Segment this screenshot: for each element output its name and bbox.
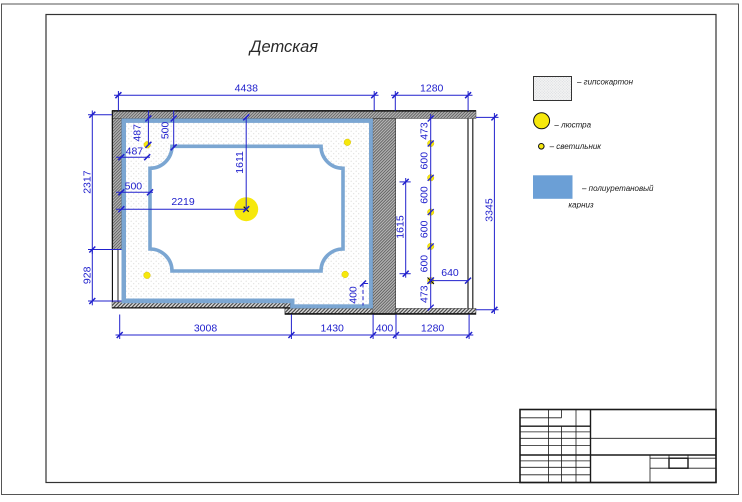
svg-text:3008: 3008 xyxy=(194,323,218,335)
svg-text:1280: 1280 xyxy=(421,323,445,335)
svg-text:473: 473 xyxy=(419,285,431,303)
svg-text:1430: 1430 xyxy=(321,323,345,335)
svg-text:1615: 1615 xyxy=(395,215,407,239)
svg-text:500: 500 xyxy=(125,181,143,193)
svg-text:600: 600 xyxy=(419,255,431,273)
svg-text:4438: 4438 xyxy=(235,83,259,95)
svg-text:– люстра: – люстра xyxy=(553,121,591,130)
svg-text:400: 400 xyxy=(376,323,394,335)
svg-text:487: 487 xyxy=(126,145,144,157)
svg-text:– полиуретановый: – полиуретановый xyxy=(581,184,654,193)
svg-text:400: 400 xyxy=(348,286,360,304)
svg-text:1280: 1280 xyxy=(420,83,444,95)
svg-text:карниз: карниз xyxy=(568,201,594,210)
svg-text:– светильник: – светильник xyxy=(549,142,603,151)
svg-text:2317: 2317 xyxy=(82,170,94,194)
svg-text:3345: 3345 xyxy=(484,198,496,222)
svg-text:1611: 1611 xyxy=(234,151,246,174)
svg-text:600: 600 xyxy=(419,220,431,238)
svg-text:473: 473 xyxy=(419,122,431,140)
svg-text:Детская: Детская xyxy=(248,38,318,56)
svg-text:600: 600 xyxy=(419,152,431,170)
svg-text:2219: 2219 xyxy=(171,196,195,208)
svg-text:640: 640 xyxy=(441,267,459,279)
svg-text:928: 928 xyxy=(82,266,94,284)
svg-text:487: 487 xyxy=(132,124,144,142)
svg-text:500: 500 xyxy=(160,121,172,139)
svg-text:– гипсокартон: – гипсокартон xyxy=(576,78,634,87)
svg-text:600: 600 xyxy=(419,186,431,204)
